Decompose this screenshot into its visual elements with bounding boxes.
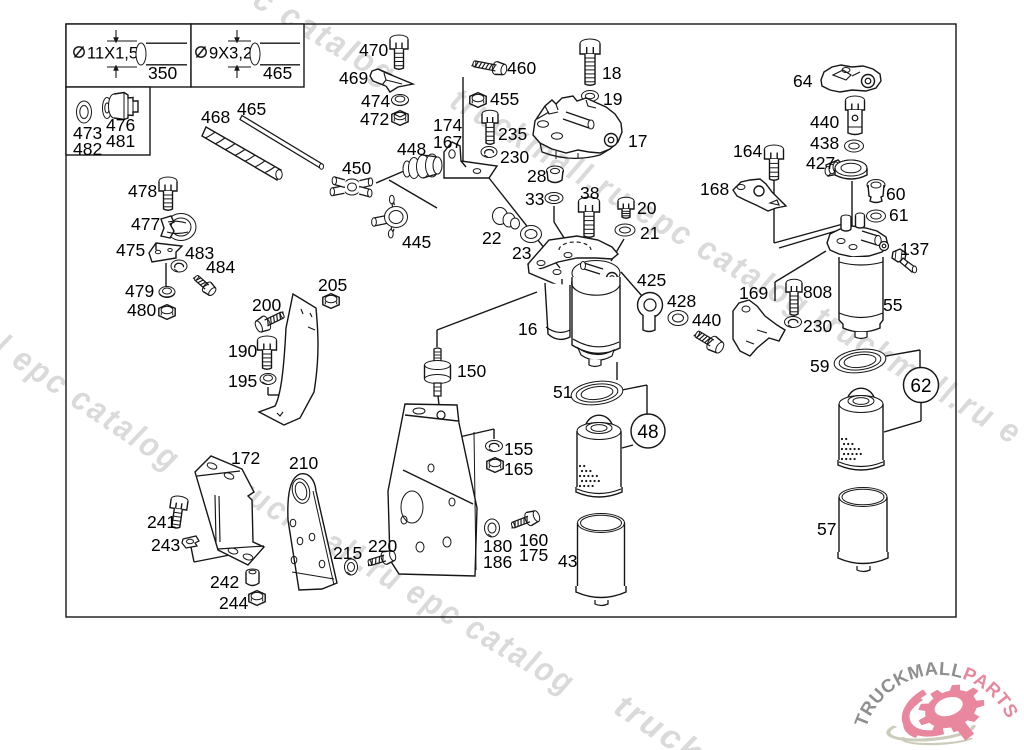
svg-text:19: 19 [603, 89, 622, 109]
svg-text:186: 186 [483, 552, 512, 572]
svg-text:241: 241 [147, 512, 176, 532]
svg-text:38: 38 [580, 183, 599, 203]
svg-text:427: 427 [806, 153, 835, 173]
svg-text:474: 474 [361, 91, 390, 111]
svg-text:468: 468 [201, 107, 230, 127]
svg-text:220: 220 [368, 536, 397, 556]
svg-text:477: 477 [131, 214, 160, 234]
svg-text:200: 200 [252, 295, 281, 315]
svg-text:475: 475 [116, 240, 145, 260]
svg-text:172: 172 [231, 448, 260, 468]
svg-text:242: 242 [210, 572, 239, 592]
svg-text:28: 28 [527, 166, 546, 186]
svg-text:481: 481 [106, 131, 135, 151]
svg-text:43: 43 [558, 551, 577, 571]
svg-text:484: 484 [206, 257, 235, 277]
svg-text:440: 440 [692, 310, 721, 330]
svg-text:23: 23 [512, 243, 531, 263]
svg-text:155: 155 [504, 439, 533, 459]
svg-text:470: 470 [359, 40, 388, 60]
svg-text:55: 55 [883, 295, 902, 315]
svg-text:465: 465 [263, 63, 292, 83]
svg-text:9X3,2: 9X3,2 [209, 45, 252, 63]
svg-text:190: 190 [228, 341, 257, 361]
svg-text:22: 22 [482, 228, 501, 248]
svg-text:244: 244 [219, 593, 248, 613]
svg-text:61: 61 [889, 205, 908, 225]
svg-text:230: 230 [803, 316, 832, 336]
svg-text:480: 480 [127, 300, 156, 320]
svg-text:455: 455 [490, 89, 519, 109]
svg-text:64: 64 [793, 71, 813, 91]
svg-text:445: 445 [402, 232, 431, 252]
svg-text:428: 428 [667, 291, 696, 311]
svg-text:60: 60 [886, 184, 906, 204]
svg-text:164: 164 [733, 141, 762, 161]
svg-text:168: 168 [700, 179, 729, 199]
svg-text:62: 62 [910, 376, 931, 397]
svg-text:465: 465 [237, 99, 266, 119]
svg-text:425: 425 [637, 270, 666, 290]
svg-text:205: 205 [318, 275, 347, 295]
svg-text:448: 448 [397, 139, 426, 159]
svg-text:469: 469 [339, 68, 368, 88]
svg-text:215: 215 [333, 543, 362, 563]
svg-text:57: 57 [817, 519, 836, 539]
svg-text:165: 165 [504, 459, 533, 479]
svg-text:478: 478 [128, 181, 157, 201]
svg-text:482: 482 [73, 139, 102, 159]
svg-text:450: 450 [342, 158, 371, 178]
svg-text:18: 18 [602, 63, 621, 83]
svg-text:460: 460 [507, 58, 536, 78]
svg-text:440: 440 [810, 112, 839, 132]
svg-text:169: 169 [739, 283, 768, 303]
svg-text:195: 195 [228, 371, 257, 391]
svg-text:175: 175 [519, 545, 548, 565]
svg-text:33: 33 [525, 189, 544, 209]
svg-text:48: 48 [637, 422, 658, 443]
svg-text:350: 350 [148, 63, 177, 83]
svg-text:167: 167 [433, 132, 462, 152]
svg-text:137: 137 [900, 239, 929, 259]
svg-text:51: 51 [553, 382, 572, 402]
svg-text:808: 808 [803, 282, 832, 302]
svg-text:16: 16 [518, 319, 537, 339]
svg-text:243: 243 [151, 535, 180, 555]
svg-text:235: 235 [498, 124, 527, 144]
svg-text:472: 472 [360, 109, 389, 129]
svg-text:20: 20 [637, 198, 657, 218]
svg-text:17: 17 [628, 131, 647, 151]
svg-text:230: 230 [500, 147, 529, 167]
svg-text:59: 59 [810, 356, 829, 376]
svg-text:479: 479 [125, 281, 154, 301]
svg-text:21: 21 [640, 223, 659, 243]
svg-text:438: 438 [810, 133, 839, 153]
svg-text:11X1,5: 11X1,5 [87, 45, 138, 63]
svg-text:150: 150 [457, 361, 486, 381]
svg-text:210: 210 [289, 453, 318, 473]
